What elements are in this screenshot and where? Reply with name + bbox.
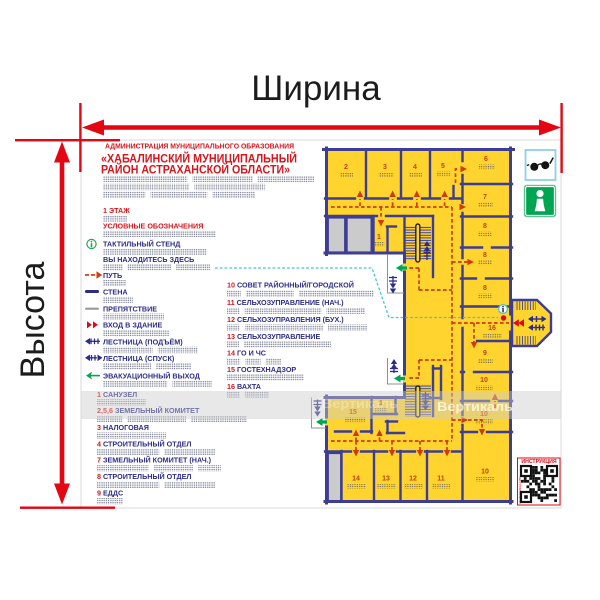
svg-text:УСЛОВНЫЕ ОБОЗНАЧЕНИЯ: УСЛОВНЫЕ ОБОЗНАЧЕНИЯ bbox=[103, 221, 203, 230]
svg-text:АДМИНИСТРАЦИЯ МУНИЦИПАЛЬНОГО О: АДМИНИСТРАЦИЯ МУНИЦИПАЛЬНОГО ОБРАЗОВАНИЯ bbox=[105, 144, 294, 151]
svg-text:9: 9 bbox=[483, 350, 487, 357]
svg-text:ИНСТРУКЦИЯ: ИНСТРУКЦИЯ bbox=[521, 459, 557, 465]
svg-text:12: 12 bbox=[409, 476, 417, 483]
svg-text:4 СТРОИТЕЛЬНЫЙ ОТДЕЛ: 4 СТРОИТЕЛЬНЫЙ ОТДЕЛ bbox=[97, 439, 191, 448]
svg-text:5: 5 bbox=[441, 163, 445, 170]
svg-text:10: 10 bbox=[481, 469, 489, 476]
svg-text:10: 10 bbox=[480, 377, 488, 384]
svg-text:3 НАЛОГОВАЯ: 3 НАЛОГОВАЯ bbox=[97, 423, 149, 432]
svg-text:4: 4 bbox=[413, 164, 417, 171]
svg-text:16 ВАХТА: 16 ВАХТА bbox=[227, 382, 261, 391]
svg-text:10 СОВЕТ РАЙОННЫЙ/ГОРОДСКОЙ: 10 СОВЕТ РАЙОННЫЙ/ГОРОДСКОЙ bbox=[227, 281, 354, 290]
svg-text:ПРЕПЯТСТВИЕ: ПРЕПЯТСТВИЕ bbox=[103, 304, 157, 313]
svg-text:14: 14 bbox=[352, 476, 360, 483]
svg-text:ТАКТИЛЬНЫЙ СТЕНД: ТАКТИЛЬНЫЙ СТЕНД bbox=[103, 240, 180, 249]
svg-text:2: 2 bbox=[344, 164, 348, 171]
svg-text:15 ГОСТЕХНАДЗОР: 15 ГОСТЕХНАДЗОР bbox=[227, 365, 296, 374]
svg-text:8: 8 bbox=[483, 223, 487, 230]
svg-text:ВЫ НАХОДИТЕСЬ ЗДЕСЬ: ВЫ НАХОДИТЕСЬ ЗДЕСЬ bbox=[103, 255, 194, 264]
svg-text:ВХОД В ЗДАНИЕ: ВХОД В ЗДАНИЕ bbox=[103, 320, 162, 329]
svg-text:7: 7 bbox=[483, 194, 487, 201]
svg-text:11: 11 bbox=[437, 476, 445, 483]
svg-text:Вертикаль: Вертикаль bbox=[322, 396, 398, 411]
svg-text:13 СЕЛЬХОЗУПРАВЛЕНИЕ: 13 СЕЛЬХОЗУПРАВЛЕНИЕ bbox=[227, 332, 320, 341]
svg-text:8 СТРОИТЕЛЬНЫЙ ОТДЕЛ: 8 СТРОИТЕЛЬНЫЙ ОТДЕЛ bbox=[97, 472, 191, 481]
svg-text:6: 6 bbox=[484, 156, 488, 163]
svg-text:ПУТЬ: ПУТЬ bbox=[103, 271, 122, 280]
svg-text:1: 1 bbox=[377, 234, 381, 241]
svg-text:Ширина: Ширина bbox=[251, 69, 381, 108]
svg-text:9 ЕДДС: 9 ЕДДС bbox=[97, 489, 123, 498]
svg-text:ЛЕСТНИЦА (СПУСК): ЛЕСТНИЦА (СПУСК) bbox=[103, 354, 175, 363]
svg-text:ЛЕСТНИЦА (ПОДЪЁМ): ЛЕСТНИЦА (ПОДЪЁМ) bbox=[103, 337, 183, 346]
svg-text:РАЙОН АСТРАХАНСКОЙ ОБЛАСТИ»: РАЙОН АСТРАХАНСКОЙ ОБЛАСТИ» bbox=[101, 164, 290, 177]
svg-text:8: 8 bbox=[483, 285, 487, 292]
svg-text:Высота: Высота bbox=[14, 262, 52, 379]
svg-text:16: 16 bbox=[488, 325, 496, 332]
svg-text:12 СЕЛЬХОЗУПРАВЛЕНИЯ (БУХ.): 12 СЕЛЬХОЗУПРАВЛЕНИЯ (БУХ.) bbox=[227, 315, 344, 324]
svg-text:8: 8 bbox=[483, 252, 487, 259]
svg-text:14 ГО И ЧС: 14 ГО И ЧС bbox=[227, 349, 266, 358]
svg-text:СТЕНА: СТЕНА bbox=[103, 287, 128, 296]
svg-text:ЭВАКУАЦИОННЫЙ ВЫХОД: ЭВАКУАЦИОННЫЙ ВЫХОД bbox=[103, 371, 200, 380]
svg-text:7 ЗЕМЕЛЬНЫЙ КОМИТЕТ (НАЧ.): 7 ЗЕМЕЛЬНЫЙ КОМИТЕТ (НАЧ.) bbox=[97, 456, 212, 465]
svg-text:13: 13 bbox=[382, 476, 390, 483]
svg-text:3: 3 bbox=[383, 164, 387, 171]
svg-text:1 ЭТАЖ: 1 ЭТАЖ bbox=[103, 206, 130, 215]
svg-text:11 СЕЛЬХОЗУПРАВЛЕНИЕ (НАЧ.): 11 СЕЛЬХОЗУПРАВЛЕНИЕ (НАЧ.) bbox=[227, 298, 344, 307]
svg-text:Вертикаль: Вертикаль bbox=[437, 399, 513, 414]
